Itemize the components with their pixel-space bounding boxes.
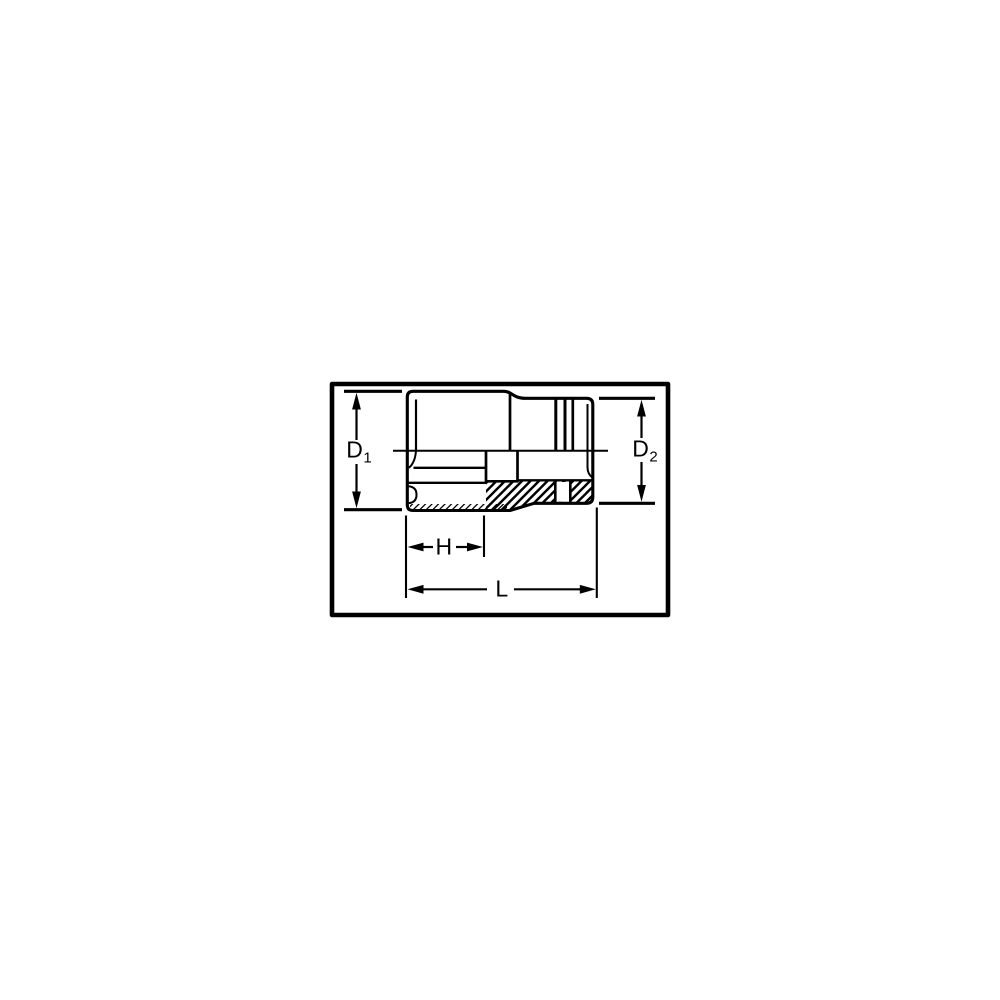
d1-base: D bbox=[346, 437, 363, 463]
square-drive-hole bbox=[486, 451, 518, 482]
d1-subscript: 1 bbox=[363, 450, 371, 467]
h-arrow-right bbox=[467, 543, 483, 552]
dimension-label-d2: D2 bbox=[632, 438, 657, 465]
dimension-label-d1: D1 bbox=[346, 439, 371, 466]
h-arrow-left bbox=[408, 543, 424, 552]
pin-hole-gap bbox=[557, 482, 570, 502]
hex-corner-bulge-arc bbox=[409, 486, 417, 503]
d2-base: D bbox=[632, 436, 649, 462]
dimension-label-l: L bbox=[495, 578, 508, 601]
d1-arrow-down bbox=[352, 492, 361, 509]
d2-subscript: 2 bbox=[649, 449, 657, 466]
hex-corner-fillet-arc bbox=[409, 451, 416, 468]
socket-dimension-drawing bbox=[0, 0, 1000, 1000]
l-arrow-right bbox=[580, 585, 596, 594]
d2-arrow-up bbox=[637, 400, 646, 417]
dimension-label-h: H bbox=[435, 536, 452, 559]
l-arrow-left bbox=[408, 585, 424, 594]
section-hatch-thin bbox=[410, 504, 507, 510]
page-canvas: D1 D2 H L bbox=[0, 0, 1000, 1000]
d1-arrow-up bbox=[352, 393, 361, 410]
d2-arrow-down bbox=[637, 485, 646, 502]
